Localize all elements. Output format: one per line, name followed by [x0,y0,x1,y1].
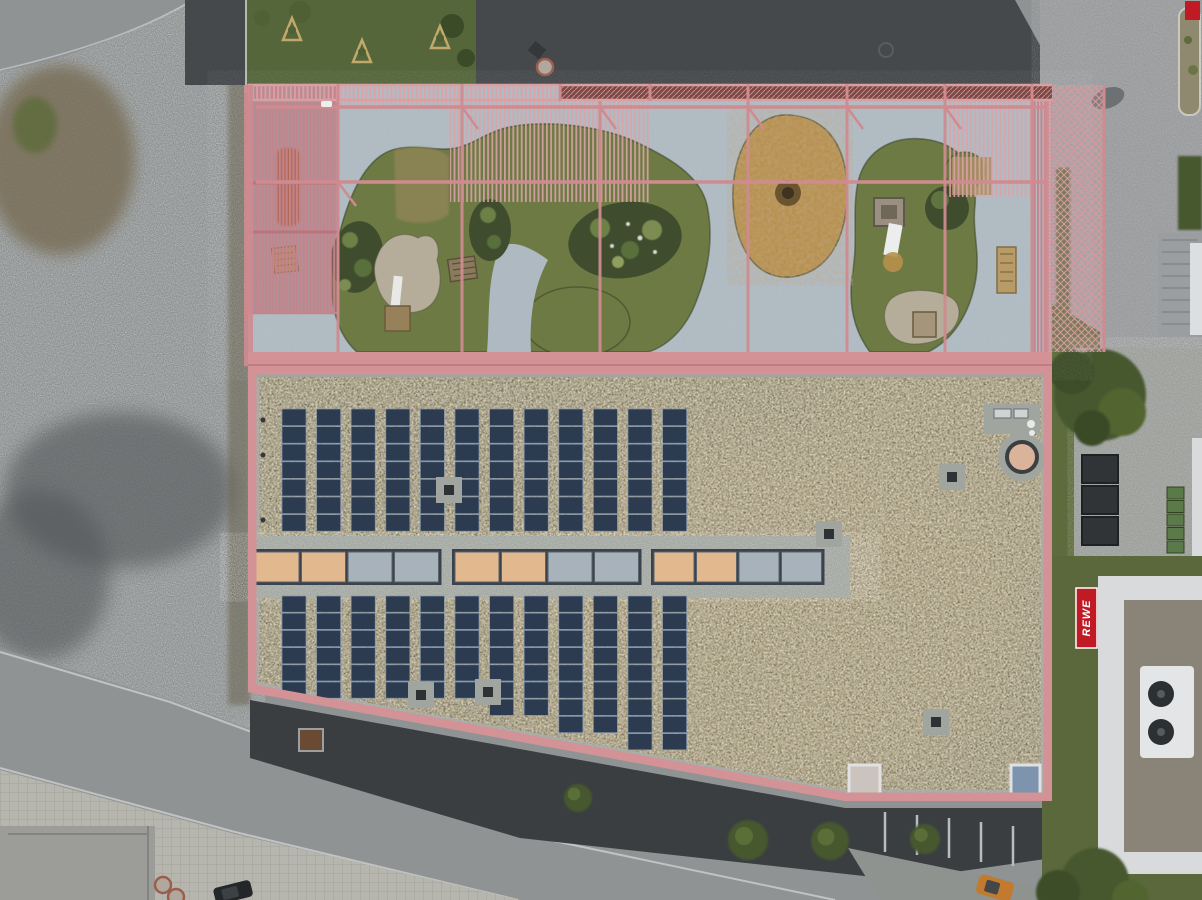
solar-panel [593,427,617,444]
solar-panel [524,596,548,612]
skylight-pane-warm [502,552,546,582]
round-vent [998,433,1046,481]
solar-panel [386,479,410,496]
solar-panel [628,665,652,681]
solar-panel [351,444,375,461]
hvac-fan-hub-2 [1157,728,1165,736]
solar-panel [351,427,375,444]
play-platform [385,306,410,331]
solar-panel [628,409,652,426]
skylight-strip [252,549,825,585]
street-tree-highlight [817,828,834,845]
solar-panel [351,409,375,426]
solar-panel [524,444,548,461]
solar-panel [420,427,444,444]
pergola-lamp [321,101,332,107]
solar-panel [490,613,514,629]
green-bin [1167,541,1184,553]
solar-panel [663,648,687,664]
solar-panel [663,596,687,612]
solar-panel [663,682,687,698]
vent-cap [483,687,493,697]
green-bin [1167,501,1184,513]
solar-panel [386,462,410,479]
solar-panel [490,596,514,612]
vent-cap [931,717,941,727]
solar-panel [420,596,444,612]
canopy-dense-slats [248,85,338,313]
manhole-cover [155,877,171,893]
solar-panel [628,427,652,444]
solar-panel [559,665,583,681]
planted-strip-top [246,0,476,92]
drain-dot-3 [261,518,266,523]
solar-panel [386,409,410,426]
solar-panel [559,613,583,629]
solar-panel [559,444,583,461]
vent-cap [416,690,426,700]
solar-panel [593,665,617,681]
solar-panel [593,630,617,646]
solar-panel [455,515,479,532]
solar-panel [455,409,479,426]
skylight-pane-warm [255,552,299,582]
solar-panel [317,613,341,629]
solar-panel [351,497,375,514]
young-tree-2 [254,10,270,26]
left-fence [244,85,253,366]
solar-panel [628,716,652,732]
drain-dot-2 [261,453,266,458]
skylight-pane-cool [595,552,639,582]
solar-panel [317,630,341,646]
solar-panel [559,648,583,664]
solar-panel [420,515,444,532]
skylight-pane-cool [739,552,779,582]
solar-panel [524,630,548,646]
solar-panel [386,515,410,532]
skylight-pane-cool [348,552,392,582]
weed-tuft [13,97,57,153]
solar-panel [663,479,687,496]
solar-panel [282,479,306,496]
woodchip-oval [733,115,847,277]
solar-panel [593,648,617,664]
solar-panel [524,515,548,532]
solar-panel [663,409,687,426]
solar-panel [282,648,306,664]
solar-panel [351,665,375,681]
sapling [358,48,366,56]
solar-panel [386,596,410,612]
planted-strip-texture [246,0,476,92]
solar-panel [663,665,687,681]
solar-panel [420,648,444,664]
skylight-pane-warm [654,552,694,582]
planter-box [299,729,323,751]
solar-panel [490,479,514,496]
waste-container [1082,486,1118,514]
green-bin [1167,528,1184,540]
island-plant [1184,36,1192,44]
solar-panel [420,462,444,479]
solar-panel [490,648,514,664]
solar-panel [663,427,687,444]
solar-panel [282,665,306,681]
solar-panel [593,444,617,461]
top-fence-mesh [560,86,1052,100]
solar-panel [490,630,514,646]
sign-island [1179,1,1200,115]
sapling [288,26,296,34]
retaining-wall [0,826,155,900]
vent-cap [824,529,834,539]
hedge [1178,156,1202,230]
solar-panel [282,444,306,461]
solar-panel [282,462,306,479]
solar-panel [386,497,410,514]
solar-panel [593,462,617,479]
street-sign [1185,1,1200,20]
solar-panel [628,648,652,664]
solar-panel [282,427,306,444]
sapling [436,34,444,42]
solar-panel [559,462,583,479]
solar-panel [386,648,410,664]
solar-panel [663,699,687,715]
dry-lawn-patch [394,147,449,223]
solar-panel [455,427,479,444]
solar-panel [628,515,652,532]
solar-panel [524,409,548,426]
solar-panel [351,462,375,479]
solar-panel [386,613,410,629]
vent-cap [947,472,957,482]
solar-panel [663,444,687,461]
solar-panel [628,479,652,496]
solar-panel [282,515,306,532]
solar-panel [282,409,306,426]
mesh-fence-right [1046,85,1104,352]
mid-parapet-pink [248,352,1052,366]
solar-panel [282,630,306,646]
solar-panel [386,630,410,646]
street-tree-highlight [914,828,928,842]
solar-panel [628,613,652,629]
solar-panel [455,462,479,479]
solar-panel [420,630,444,646]
solar-panel [420,665,444,681]
solar-panel [559,699,583,715]
solar-panel [455,648,479,664]
canopy-band-mid [450,85,650,202]
solar-panel [524,427,548,444]
roof-equipment [984,404,1040,436]
solar-panel [628,630,652,646]
solar-panel [282,497,306,514]
solar-panel [628,497,652,514]
waste-container [1082,455,1118,483]
solar-panel [386,444,410,461]
solar-panel [455,613,479,629]
solar-panel [628,444,652,461]
bench-right [997,247,1016,293]
solar-panel [559,497,583,514]
solar-panel [663,515,687,532]
white-building-edge-top [1190,243,1202,335]
solar-panel [317,648,341,664]
solar-panel [351,613,375,629]
solar-panel [524,665,548,681]
bush-2 [457,49,475,67]
skylight-pane-cool [548,552,592,582]
waste-container [1082,517,1118,545]
solar-panel [559,479,583,496]
street-tree-highlight [568,788,581,801]
solar-panel [317,515,341,532]
solar-panel [455,596,479,612]
manhole-cover [168,889,184,900]
solar-panel [663,613,687,629]
solar-panel [559,682,583,698]
solar-panel [282,596,306,612]
solar-panel [663,716,687,732]
solar-panel [663,497,687,514]
hvac-unit [1140,666,1194,758]
solar-panel [455,665,479,681]
solar-panel [593,682,617,698]
solar-panel [628,682,652,698]
solar-panel [628,462,652,479]
solar-panel [593,479,617,496]
solar-panel [455,630,479,646]
solar-panel [282,613,306,629]
manhole-cover [537,59,553,75]
solar-panel [351,479,375,496]
solar-panel [628,734,652,750]
white-building-edge-mid [1192,438,1202,562]
aerial-photo: REWE [0,0,1202,900]
solar-panel [317,444,341,461]
tree-ring-center [782,187,794,199]
top-fence-slats [248,86,560,100]
solar-panel [524,497,548,514]
solar-panel [524,699,548,715]
solar-panel [593,699,617,715]
solar-panel [317,596,341,612]
green-bin [1167,487,1184,499]
aerial-photo-stage: REWE [0,0,1202,900]
vent-cap [444,485,454,495]
solar-panel [490,427,514,444]
planted-island [1179,8,1200,115]
solar-panel [317,497,341,514]
corner-skylight-blue [1011,765,1040,794]
solar-panel [559,716,583,732]
island-plant-2 [1188,65,1198,75]
solar-panel [559,427,583,444]
green-bins [1167,487,1184,553]
solar-panel [317,427,341,444]
solar-panel [317,409,341,426]
solar-panel [663,462,687,479]
solar-panel [593,515,617,532]
solar-panel [593,497,617,514]
corner-skylight-white [849,765,880,794]
solar-panel [524,462,548,479]
solar-panel [490,444,514,461]
sand-box [913,312,936,337]
solar-panel [593,716,617,732]
solar-panel [524,682,548,698]
skylight-pane-warm [697,552,737,582]
solar-panel [317,479,341,496]
solar-panel [524,613,548,629]
rewe-sign-text: REWE [1081,600,1093,637]
chip-landing [883,252,903,272]
solar-panel [455,444,479,461]
skylight-pane-warm [302,552,346,582]
solar-panel [317,462,341,479]
solar-panel [420,409,444,426]
solar-panel [628,596,652,612]
solar-panel [351,515,375,532]
solar-panel [524,479,548,496]
sand-pit-left [374,234,440,312]
solar-panel [386,665,410,681]
solar-panel [490,515,514,532]
skylight-pane-cool [782,552,822,582]
solar-panel [317,682,341,698]
solar-panel [490,409,514,426]
solar-panel [490,497,514,514]
solar-panel [559,409,583,426]
green-bin [1167,514,1184,526]
solar-panel [593,409,617,426]
canopy-band-right [947,85,1032,197]
street-tree-highlight [735,827,753,845]
solar-panel [663,734,687,750]
drain-dot-1 [261,418,266,423]
solar-panel [559,596,583,612]
solar-panel [628,699,652,715]
solar-panel [490,665,514,681]
solar-panel [490,462,514,479]
solar-panel [351,682,375,698]
skylight-band [250,536,850,598]
solar-panel [386,427,410,444]
skylight-pane-warm [455,552,499,582]
hvac-fan-hub [1157,690,1165,698]
solar-panel [386,682,410,698]
solar-panel [317,665,341,681]
solar-panel [420,444,444,461]
solar-panel [420,613,444,629]
solar-panel [559,630,583,646]
solar-panel [524,648,548,664]
solar-panel [593,613,617,629]
skylight-pane-cool [395,552,439,582]
solar-panel [559,515,583,532]
solar-panel [593,596,617,612]
solar-panel [351,648,375,664]
waste-containers [1082,455,1118,545]
solar-panel [351,596,375,612]
rooftop-playground [244,84,1104,366]
solar-panel [351,630,375,646]
solar-panel [663,630,687,646]
